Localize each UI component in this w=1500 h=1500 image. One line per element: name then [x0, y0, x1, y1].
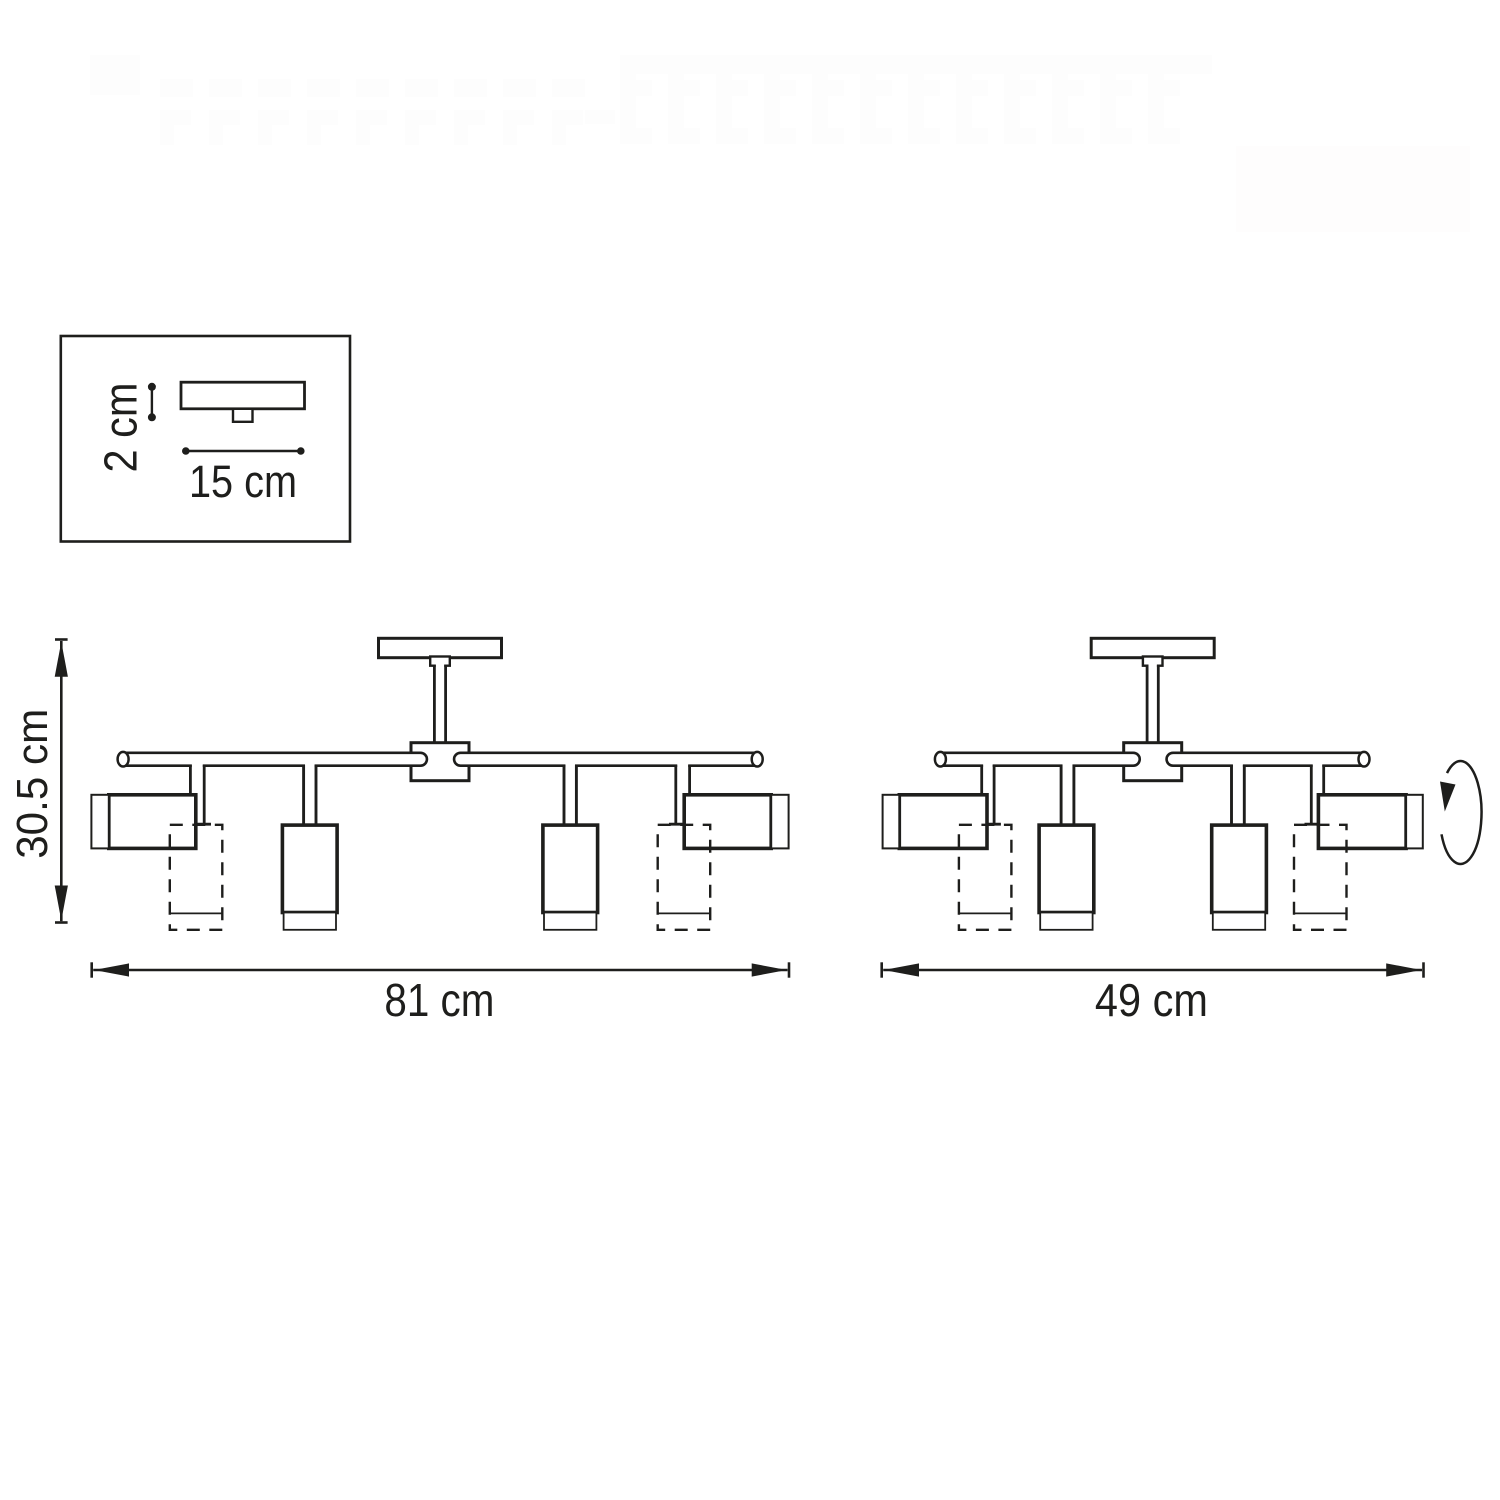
- svg-text:30.5 cm: 30.5 cm: [8, 709, 57, 859]
- svg-text:49 cm: 49 cm: [1095, 974, 1208, 1026]
- svg-text:81 cm: 81 cm: [384, 974, 494, 1026]
- svg-text:2 cm: 2 cm: [95, 383, 147, 473]
- svg-text:15 cm: 15 cm: [189, 456, 297, 507]
